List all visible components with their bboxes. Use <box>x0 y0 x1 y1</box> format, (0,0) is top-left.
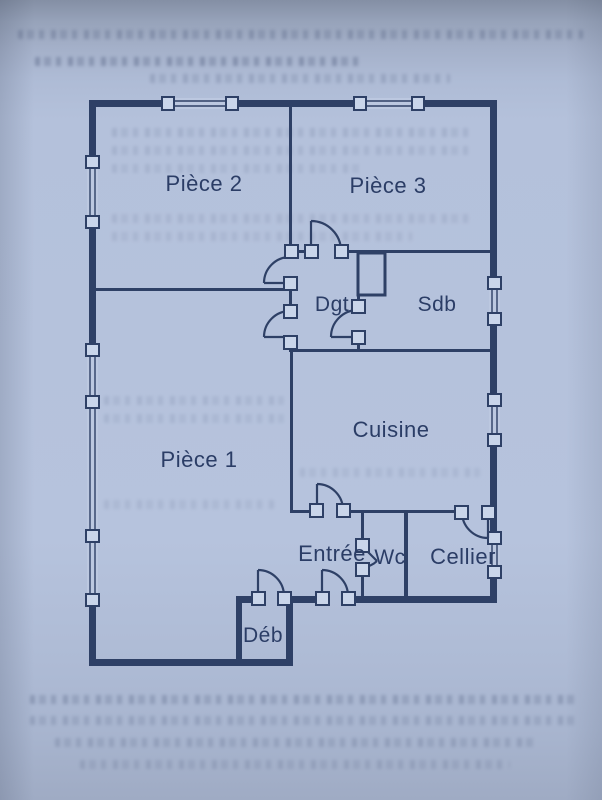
walls <box>89 100 497 666</box>
wall-bottom-left <box>89 659 293 666</box>
wall-cuisine-top <box>289 349 490 352</box>
window-piece2-top <box>162 97 238 110</box>
duct-box <box>358 253 385 295</box>
wall-bottom-right <box>348 596 497 603</box>
window-piece2-left <box>86 156 99 228</box>
room-label-deb: Déb <box>243 624 283 647</box>
floor-plan-svg: Pièce 2 Pièce 3 Dgt Sdb Cuisine Pièce 1 … <box>0 0 602 800</box>
wall-cuisine-left <box>290 352 293 510</box>
room-label-wc: Wc <box>374 546 405 569</box>
room-label-dgt: Dgt <box>315 293 349 316</box>
wall-top <box>96 100 497 107</box>
room-label-cuisine: Cuisine <box>353 417 430 442</box>
photographed-page: Pièce 2 Pièce 3 Dgt Sdb Cuisine Pièce 1 … <box>0 0 602 800</box>
room-label-piece1: Pièce 1 <box>161 447 238 472</box>
window-sdb-right <box>488 277 501 325</box>
room-label-sdb: Sdb <box>418 293 457 316</box>
wall-right <box>490 100 497 603</box>
window-piece3-top <box>354 97 424 110</box>
room-labels: Pièce 2 Pièce 3 Dgt Sdb Cuisine Pièce 1 … <box>161 171 496 647</box>
room-label-piece2: Pièce 2 <box>166 171 243 196</box>
wall-piece2-bottom <box>96 288 289 291</box>
wall-divider <box>289 107 292 258</box>
room-label-cellier: Cellier <box>430 544 496 569</box>
room-label-piece3: Pièce 3 <box>350 173 427 198</box>
window-cuisine-right <box>488 394 501 446</box>
wall-deb-right <box>286 596 293 666</box>
wall-cuisine-bottom <box>343 510 462 513</box>
window-piece1-left <box>86 344 99 606</box>
room-label-entree: Entrée <box>298 541 366 566</box>
wall-deb-left <box>236 596 242 666</box>
